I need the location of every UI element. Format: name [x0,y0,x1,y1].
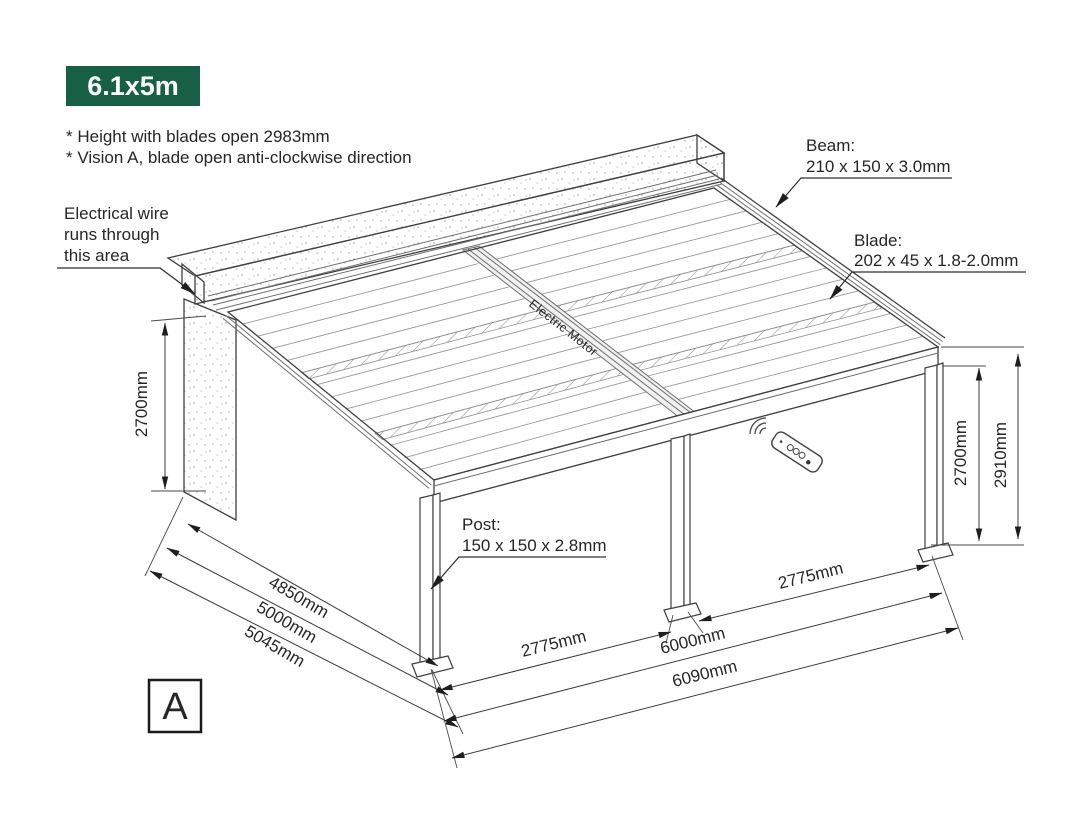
dim-wall-height-label: 2700mm [132,371,151,437]
size-badge-label: 6.1x5m [87,71,179,101]
size-badge: 6.1x5m [66,66,200,106]
note-vision: * Vision A, blade open anti-clockwise di… [66,148,412,167]
blade-label-spec: 202 x 45 x 1.8-2.0mm [854,251,1018,270]
beam-label-title: Beam: [806,136,855,155]
note-height: * Height with blades open 2983mm [66,127,330,146]
blade-label-title: Blade: [854,231,902,250]
electrical-note-line1: Electrical wire [64,204,169,223]
post-label-spec: 150 x 150 x 2.8mm [462,536,607,555]
electrical-note-line2: runs through [64,225,159,244]
dim-post-height-label: 2700mm [951,420,970,486]
wall-left-panel [184,299,236,520]
beam-label-spec: 210 x 150 x 3.0mm [806,157,951,176]
dim-overall-height-label: 2910mm [991,422,1010,488]
electrical-note-line3: this area [64,246,130,265]
view-letter: A [162,686,188,728]
diagram-canvas: Electric Motor [0,0,1080,831]
post-label-title: Post: [462,515,501,534]
view-letter-box: A [149,680,201,732]
